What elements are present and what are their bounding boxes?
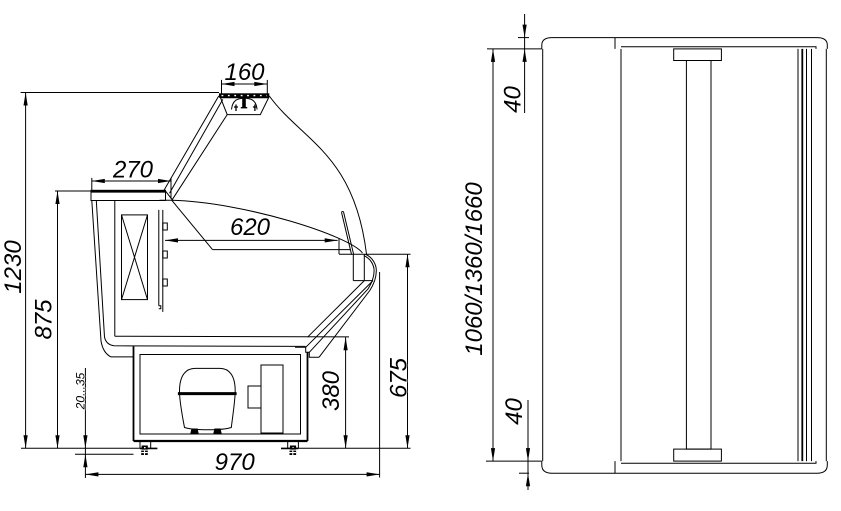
svg-text:1060/1360/1660: 1060/1360/1660 <box>461 182 488 356</box>
svg-text:1230: 1230 <box>0 240 27 294</box>
svg-text:270: 270 <box>112 157 154 184</box>
svg-text:875: 875 <box>31 299 58 340</box>
svg-text:970: 970 <box>215 449 256 476</box>
svg-text:40: 40 <box>500 86 527 113</box>
svg-text:20...35: 20...35 <box>74 372 88 410</box>
svg-text:675: 675 <box>386 357 413 398</box>
svg-text:380: 380 <box>318 370 345 411</box>
svg-text:40: 40 <box>501 398 528 425</box>
svg-text:160: 160 <box>224 59 265 86</box>
svg-text:620: 620 <box>230 214 271 241</box>
